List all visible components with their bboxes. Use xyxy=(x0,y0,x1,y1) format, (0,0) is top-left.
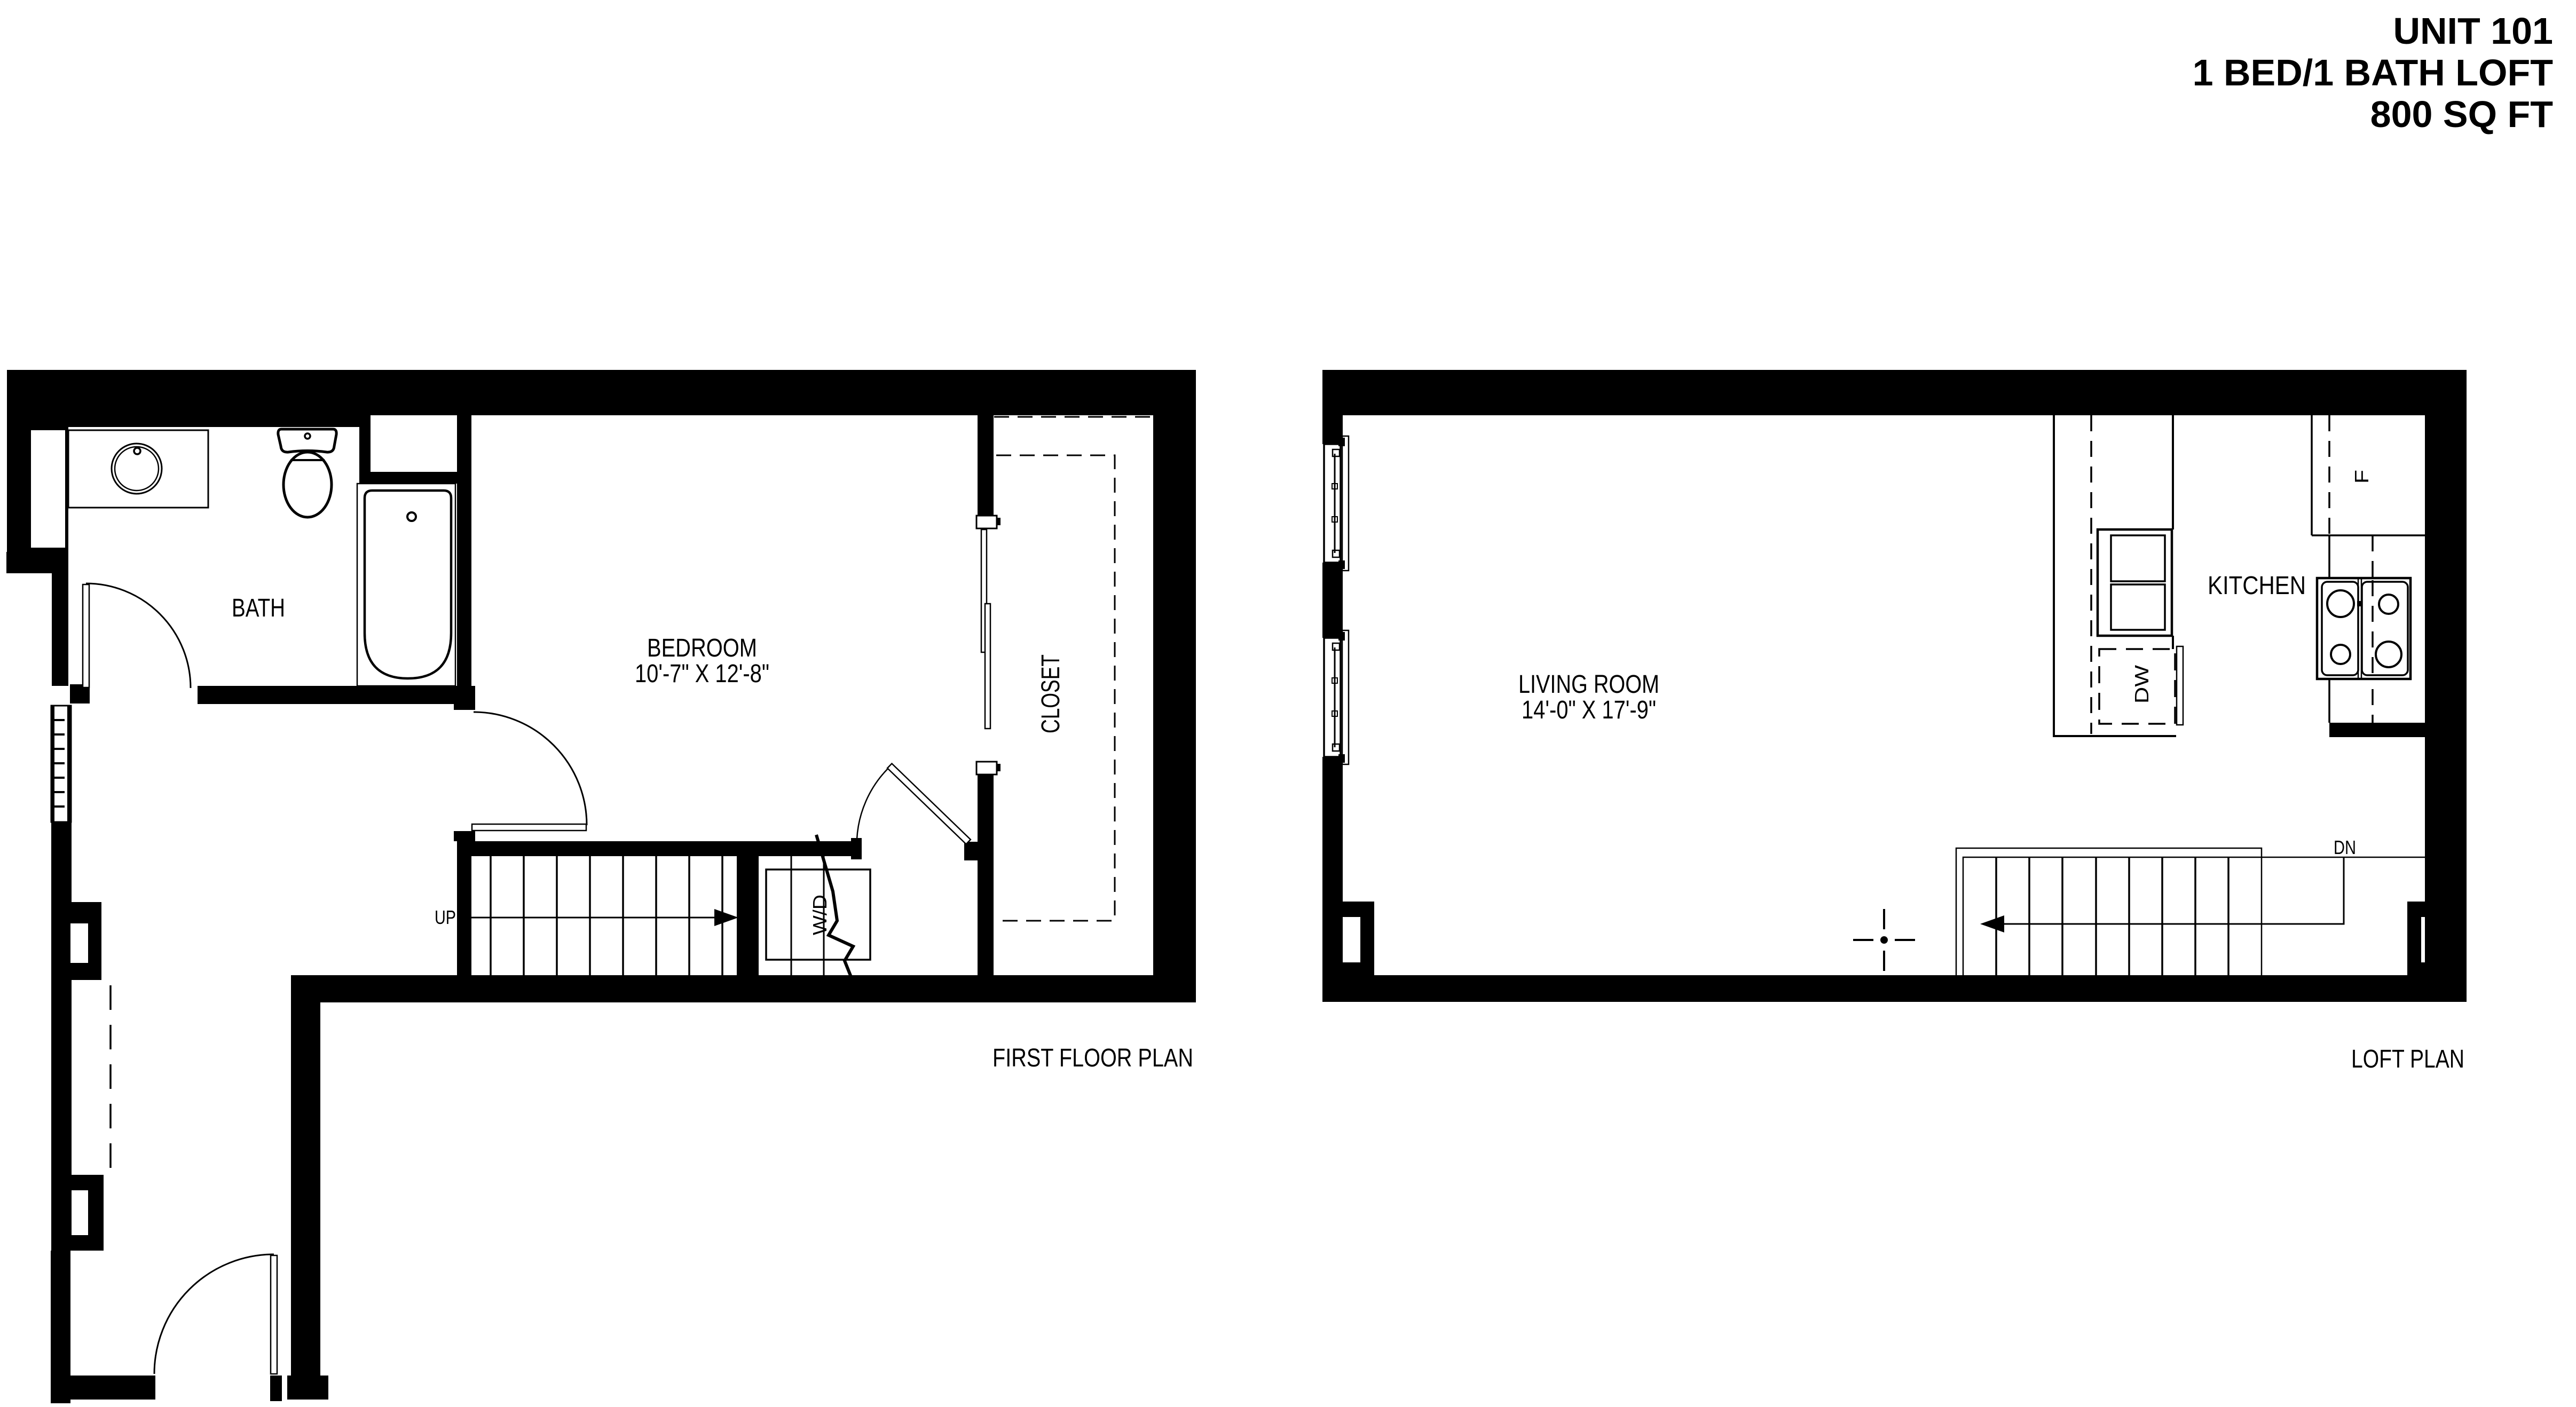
svg-text:800 SQ FT: 800 SQ FT xyxy=(2370,93,2553,135)
svg-text:UNIT 101: UNIT 101 xyxy=(2393,10,2553,52)
svg-text:CLOSET: CLOSET xyxy=(1037,654,1065,733)
svg-text:BATH: BATH xyxy=(232,594,285,622)
svg-text:LOFT PLAN: LOFT PLAN xyxy=(2351,1045,2464,1073)
svg-text:10'-7" X 12'-8": 10'-7" X 12'-8" xyxy=(635,660,769,688)
svg-text:KITCHEN: KITCHEN xyxy=(2208,572,2306,600)
svg-text:DN: DN xyxy=(2334,836,2356,858)
svg-text:1 BED/1 BATH LOFT: 1 BED/1 BATH LOFT xyxy=(2193,52,2553,93)
svg-text:W/D: W/D xyxy=(809,895,831,935)
svg-text:14'-0" X 17'-9": 14'-0" X 17'-9" xyxy=(1522,696,1656,724)
svg-text:F: F xyxy=(2351,470,2373,484)
svg-text:BEDROOM: BEDROOM xyxy=(647,634,757,662)
svg-text:LIVING ROOM: LIVING ROOM xyxy=(1518,670,1659,699)
svg-text:DW: DW xyxy=(2131,665,2153,703)
svg-text:UP: UP xyxy=(435,906,456,928)
svg-text:FIRST FLOOR PLAN: FIRST FLOOR PLAN xyxy=(992,1044,1193,1072)
